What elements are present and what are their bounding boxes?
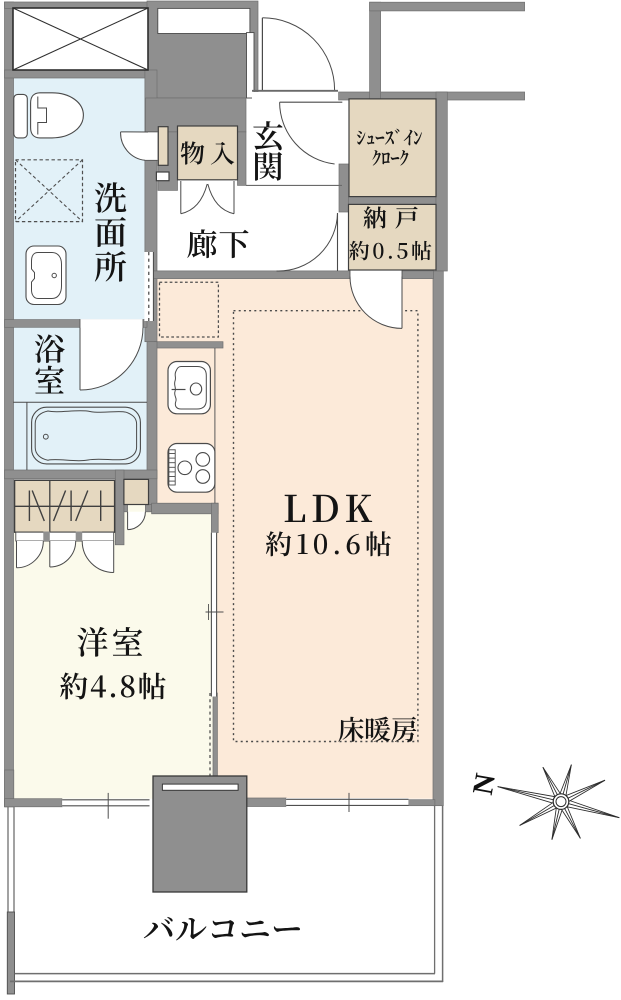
svg-text:N: N — [467, 771, 502, 797]
